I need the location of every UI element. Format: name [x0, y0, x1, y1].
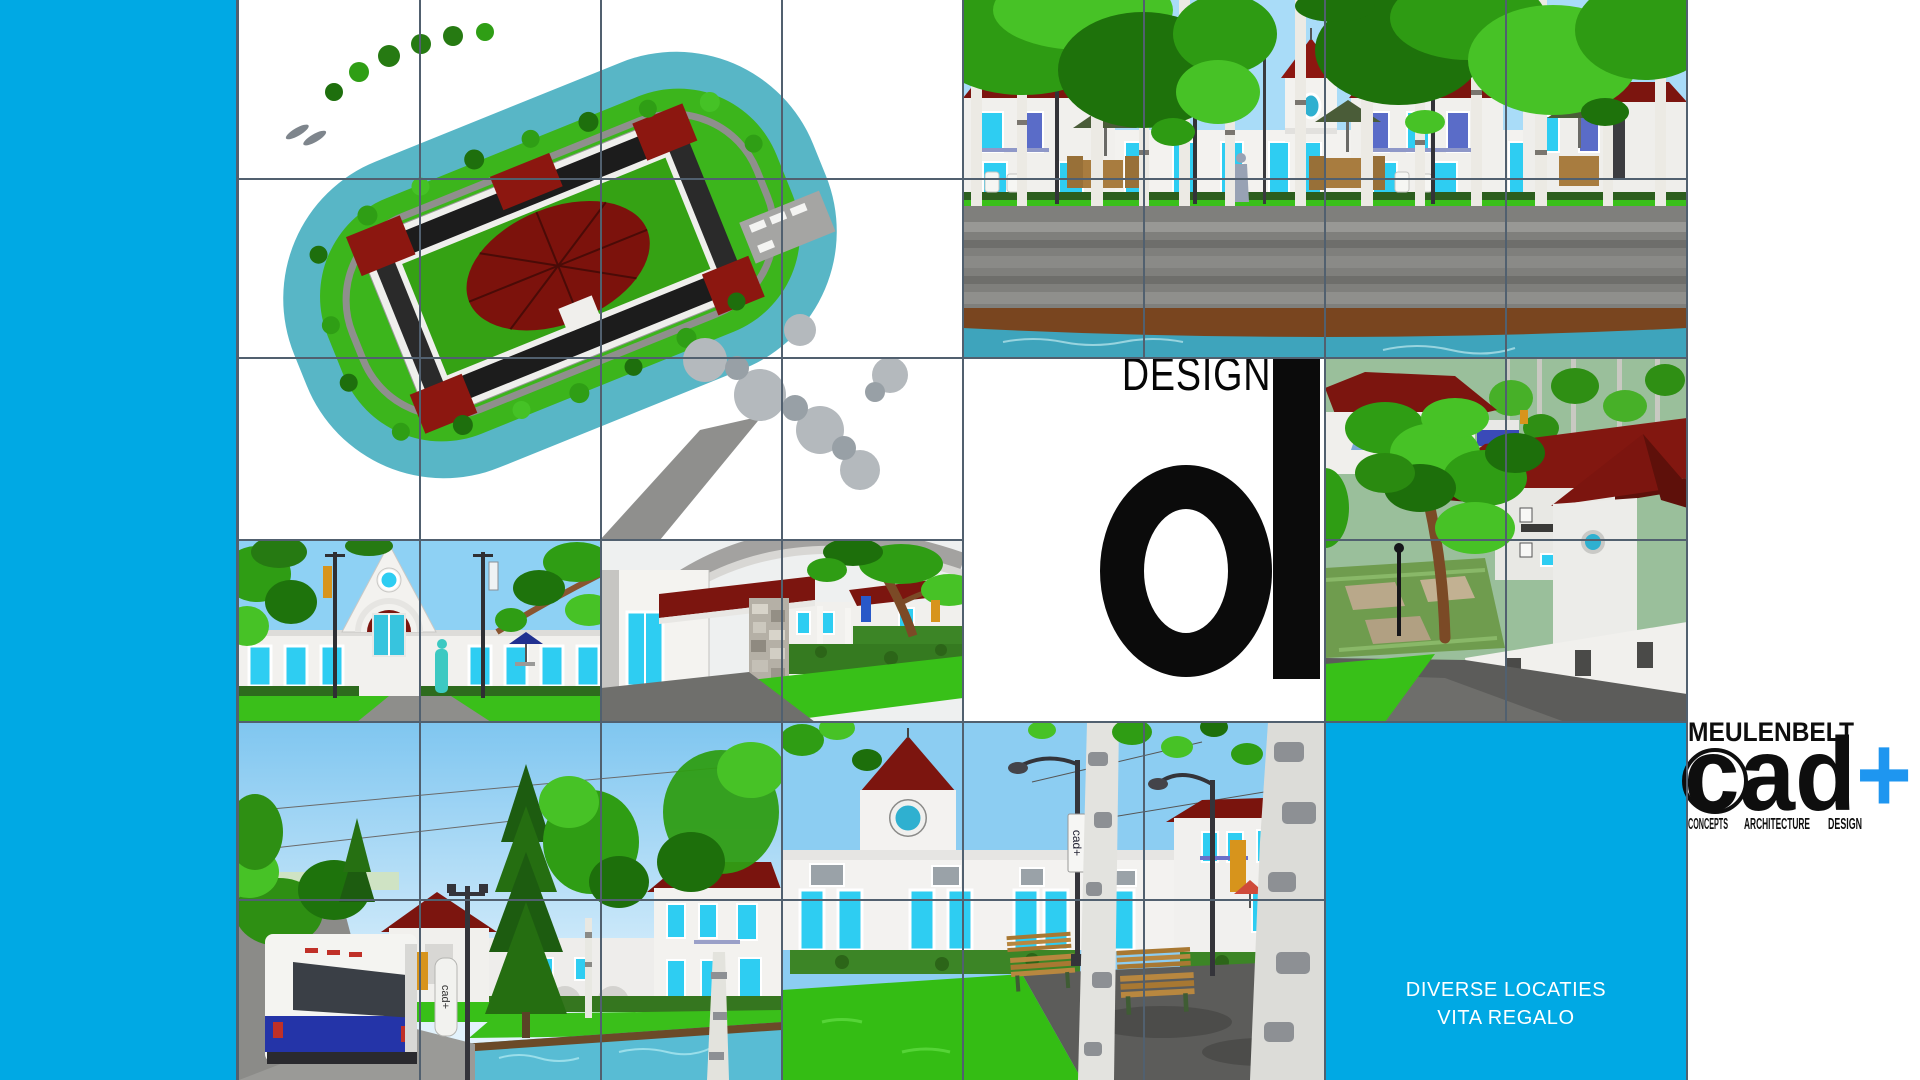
pole-banner: cad+ — [1068, 814, 1086, 872]
bus-street-image: cad+ — [239, 722, 782, 1080]
design-panel: DESIGN — [963, 358, 1325, 722]
plaza-tower-image: cad+ — [782, 722, 1325, 1080]
location-text: DIVERSE LOCATIES VITA REGALO — [1325, 976, 1687, 1032]
logo-tagline-architecture: ARCHITECTURE — [1744, 816, 1810, 833]
grid-line — [239, 178, 1687, 180]
grid-line — [1505, 0, 1507, 722]
grid-line — [239, 539, 963, 541]
logo-tagline-design: DESIGN — [1828, 816, 1862, 833]
hedge-parterre — [1325, 558, 1505, 658]
advertising-column-label: cad+ — [439, 985, 451, 1009]
grid-line — [1325, 539, 1687, 541]
location-block: DIVERSE LOCATIES VITA REGALO — [1325, 722, 1687, 1080]
grid-line — [239, 721, 1687, 723]
meulenbelt-cad-logo: MEULENBELT cad + CONCEPTS ARCHITECTURE D… — [1682, 714, 1920, 838]
presentation-slide: DESIGN — [0, 0, 1920, 1080]
left-accent-bar — [0, 0, 236, 1080]
logo-plus-icon: + — [1856, 714, 1912, 836]
bus-street-graphic: cad+ — [239, 722, 782, 1080]
location-line-1: DIVERSE LOCATIES — [1325, 976, 1687, 1004]
grid-line — [1143, 722, 1145, 1080]
pole-banner-label: cad+ — [1070, 830, 1084, 856]
location-line-2: VITA REGALO — [1325, 1004, 1687, 1032]
grid-line — [239, 357, 1687, 359]
logo-tagline-concepts: CONCEPTS — [1688, 816, 1728, 833]
d-logomark — [963, 358, 1325, 722]
bus — [265, 934, 417, 1064]
advertising-column: cad+ — [435, 958, 457, 1036]
grid-line — [239, 899, 1325, 901]
plaza-tower-graphic: cad+ — [782, 722, 1325, 1080]
